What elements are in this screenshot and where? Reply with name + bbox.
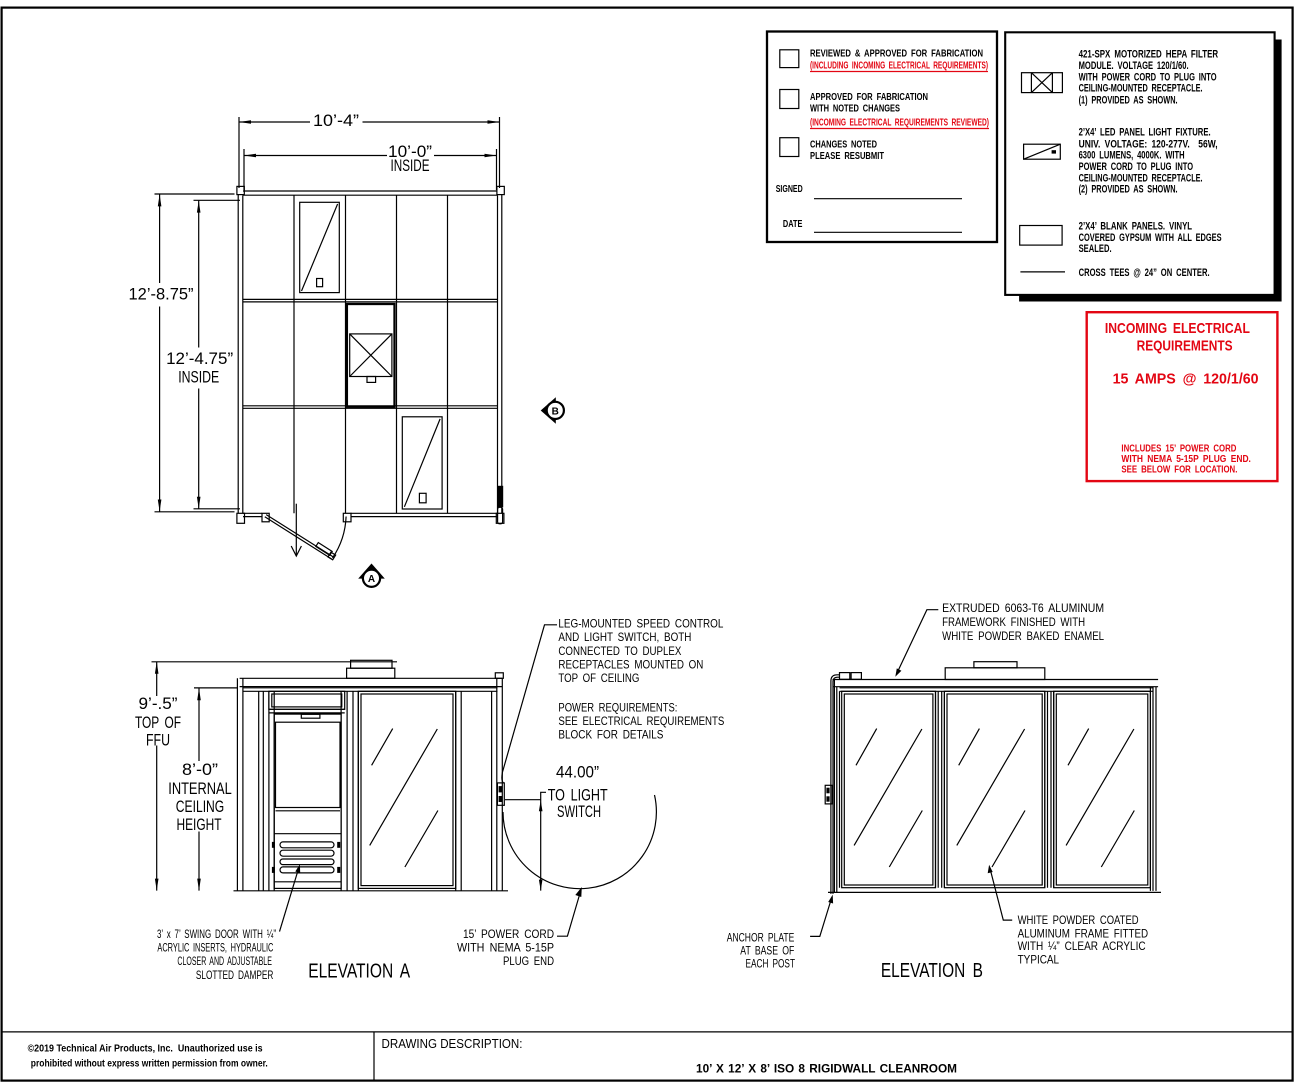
- svg-text:INTERNAL: INTERNAL: [168, 780, 232, 798]
- svg-text:TO LIGHT: TO LIGHT: [548, 787, 608, 805]
- svg-text:421-SPX MOTORIZED HEPA FILTER: 421-SPX MOTORIZED HEPA FILTER: [1079, 49, 1219, 61]
- svg-text:DATE: DATE: [783, 218, 803, 230]
- svg-text:15’ POWER CORD: 15’ POWER CORD: [463, 927, 554, 941]
- svg-text:WITH NOTED CHANGES: WITH NOTED CHANGES: [810, 103, 900, 115]
- svg-text:APPROVED FOR FABRICATION: APPROVED FOR FABRICATION: [810, 91, 928, 103]
- svg-text:ACRYLIC INSERTS, HYDRAULIC: ACRYLIC INSERTS, HYDRAULIC: [157, 941, 273, 955]
- svg-text:SEE ELECTRICAL REQUIREMENTS: SEE ELECTRICAL REQUIREMENTS: [558, 714, 724, 728]
- svg-text:SWITCH: SWITCH: [557, 803, 601, 821]
- svg-text:(INCLUDING INCOMING ELECTRICAL: (INCLUDING INCOMING ELECTRICAL REQUIREME…: [810, 60, 988, 72]
- svg-text:SLOTTED DAMPER: SLOTTED DAMPER: [196, 968, 274, 982]
- svg-text:INCOMING ELECTRICAL: INCOMING ELECTRICAL: [1105, 320, 1250, 337]
- svg-text:INSIDE: INSIDE: [178, 369, 219, 387]
- svg-text:SEALED.: SEALED.: [1079, 243, 1112, 255]
- svg-text:10’ X 12’ X 8’ ISO 8 RIGIDWALL: 10’ X 12’ X 8’ ISO 8 RIGIDWALL CLEANROOM: [696, 1062, 957, 1076]
- svg-text:12’-4.75”: 12’-4.75”: [166, 350, 233, 368]
- svg-text:CHANGES NOTED: CHANGES NOTED: [810, 139, 877, 151]
- svg-text:EACH POST: EACH POST: [746, 956, 796, 970]
- svg-text:RECEPTACLES MOUNTED ON: RECEPTACLES MOUNTED ON: [558, 658, 703, 672]
- svg-text:WITH NEMA 5-15P: WITH NEMA 5-15P: [457, 941, 554, 955]
- svg-text:CROSS TEES @ 24” ON CENTER.: CROSS TEES @ 24” ON CENTER.: [1079, 267, 1210, 279]
- svg-text:SEE BELOW FOR LOCATION.: SEE BELOW FOR LOCATION.: [1121, 464, 1237, 476]
- svg-text:9’-.5”: 9’-.5”: [139, 695, 178, 713]
- svg-text:HEIGHT: HEIGHT: [177, 816, 222, 834]
- svg-text:SIGNED: SIGNED: [776, 183, 803, 195]
- svg-text:CEILING-MOUNTED RECEPTACLE.: CEILING-MOUNTED RECEPTACLE.: [1079, 172, 1203, 184]
- svg-text:ELEVATION B: ELEVATION B: [881, 960, 983, 982]
- svg-text:(2) PROVIDED AS SHOWN.: (2) PROVIDED AS SHOWN.: [1079, 184, 1178, 196]
- svg-text:TYPICAL: TYPICAL: [1018, 953, 1060, 967]
- svg-text:REVIEWED & APPROVED FOR FABRIC: REVIEWED & APPROVED FOR FABRICATION: [810, 48, 983, 60]
- svg-text:FRAMEWORK FINISHED WITH: FRAMEWORK FINISHED WITH: [942, 615, 1085, 629]
- svg-text:AND LIGHT SWITCH, BOTH: AND LIGHT SWITCH, BOTH: [558, 630, 691, 644]
- svg-text:3’ x 7’ SWING DOOR WITH ¼”: 3’ x 7’ SWING DOOR WITH ¼”: [157, 927, 276, 941]
- svg-text:44.00”: 44.00”: [556, 764, 599, 782]
- svg-text:WITH POWER CORD TO PLUG INTO: WITH POWER CORD TO PLUG INTO: [1079, 71, 1217, 83]
- svg-text:CLOSER AND ADJUSTABLE: CLOSER AND ADJUSTABLE: [177, 954, 272, 968]
- svg-text:WITH ¼” CLEAR ACRYLIC: WITH ¼” CLEAR ACRYLIC: [1018, 939, 1146, 953]
- svg-text:UNIV. VOLTAGE: 120-277V. 56W,: UNIV. VOLTAGE: 120-277V. 56W,: [1079, 138, 1218, 150]
- svg-text:INSIDE: INSIDE: [391, 157, 430, 175]
- svg-text:TOP OF: TOP OF: [135, 714, 181, 732]
- svg-text:6300 LUMENS, 4000K. WITH: 6300 LUMENS, 4000K. WITH: [1079, 150, 1185, 162]
- svg-text:(INCOMING ELECTRICAL REQUIREME: (INCOMING ELECTRICAL REQUIREMENTS REVIEW…: [810, 117, 989, 129]
- svg-text:PLEASE RESUBMIT: PLEASE RESUBMIT: [810, 150, 884, 162]
- svg-text:CEILING: CEILING: [176, 798, 225, 816]
- svg-text:DRAWING DESCRIPTION:: DRAWING DESCRIPTION:: [382, 1037, 523, 1051]
- svg-text:EXTRUDED 6063-T6 ALUMINUM: EXTRUDED 6063-T6 ALUMINUM: [942, 601, 1104, 615]
- svg-text:FFU: FFU: [146, 732, 170, 750]
- svg-text:LEG-MOUNTED SPEED CONTROL: LEG-MOUNTED SPEED CONTROL: [558, 616, 723, 630]
- svg-text:8’-0”: 8’-0”: [182, 761, 218, 779]
- svg-text:10’-4”: 10’-4”: [313, 112, 359, 130]
- svg-text:REQUIREMENTS: REQUIREMENTS: [1137, 338, 1233, 355]
- svg-text:B: B: [552, 406, 559, 417]
- svg-text:BLOCK FOR DETAILS: BLOCK FOR DETAILS: [558, 728, 663, 742]
- svg-text:AT BASE OF: AT BASE OF: [740, 943, 794, 957]
- svg-text:(1) PROVIDED AS SHOWN.: (1) PROVIDED AS SHOWN.: [1079, 94, 1178, 106]
- svg-text:POWER REQUIREMENTS:: POWER REQUIREMENTS:: [558, 700, 677, 714]
- svg-text:TOP OF CEILING: TOP OF CEILING: [558, 671, 639, 685]
- svg-text:POWER CORD TO PLUG INTO: POWER CORD TO PLUG INTO: [1079, 161, 1194, 173]
- svg-text:WHITE POWDER BAKED ENAMEL: WHITE POWDER BAKED ENAMEL: [942, 629, 1104, 643]
- svg-text:2’X4’ BLANK PANELS. VINYL: 2’X4’ BLANK PANELS. VINYL: [1079, 221, 1193, 233]
- svg-text:prohibited without express wri: prohibited without express written permi…: [31, 1058, 268, 1070]
- svg-text:15 AMPS @ 120/1/60: 15 AMPS @ 120/1/60: [1113, 371, 1259, 388]
- svg-text:CONNECTED TO DUPLEX: CONNECTED TO DUPLEX: [558, 644, 681, 658]
- svg-text:ELEVATION A: ELEVATION A: [308, 961, 411, 983]
- svg-text:2’X4’ LED PANEL LIGHT FIXTURE.: 2’X4’ LED PANEL LIGHT FIXTURE.: [1079, 127, 1211, 139]
- svg-text:WHITE POWDER COATED: WHITE POWDER COATED: [1018, 913, 1139, 927]
- svg-text:CEILING-MOUNTED RECEPTACLE.: CEILING-MOUNTED RECEPTACLE.: [1079, 83, 1203, 95]
- svg-text:MODULE. VOLTAGE 120/1/60.: MODULE. VOLTAGE 120/1/60.: [1079, 60, 1189, 72]
- svg-text:12’-8.75”: 12’-8.75”: [129, 286, 194, 304]
- svg-text:COVERED GYPSUM WITH ALL EDGES: COVERED GYPSUM WITH ALL EDGES: [1079, 232, 1222, 244]
- svg-text:PLUG END: PLUG END: [503, 954, 554, 968]
- svg-text:©2019 Technical Air Products,: ©2019 Technical Air Products, Inc. Unaut…: [28, 1043, 263, 1055]
- svg-text:A: A: [368, 574, 375, 585]
